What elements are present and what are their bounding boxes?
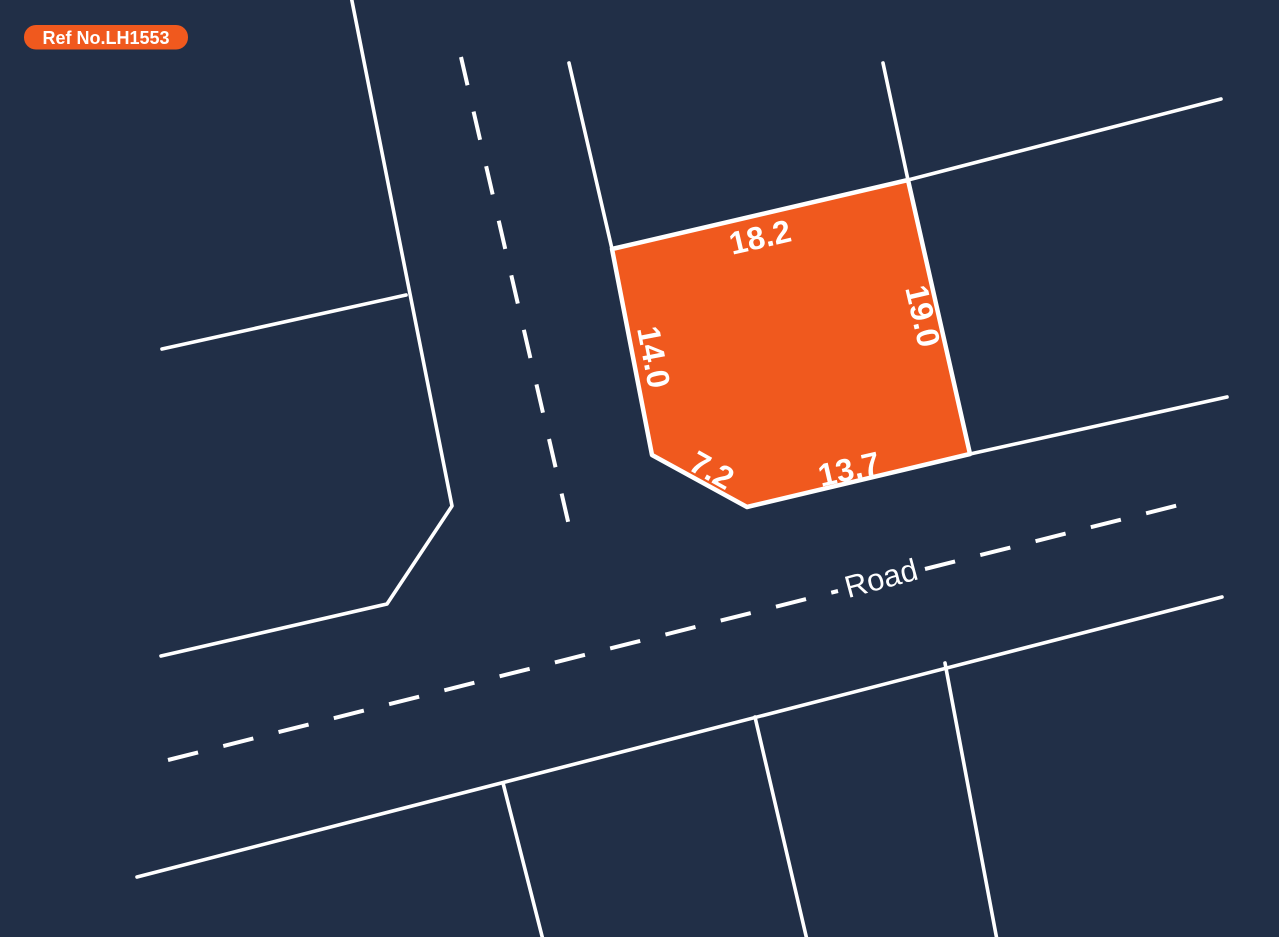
ref-badge-label: Ref No.LH1553 (42, 28, 169, 48)
ref-badge: Ref No.LH1553 (24, 25, 188, 50)
site-plan-map: 18.2 19.0 14.0 7.2 13.7 Road Ref No.LH15… (0, 0, 1279, 937)
plan-canvas: 18.2 19.0 14.0 7.2 13.7 Road Ref No.LH15… (0, 0, 1279, 937)
map-background (0, 0, 1279, 937)
